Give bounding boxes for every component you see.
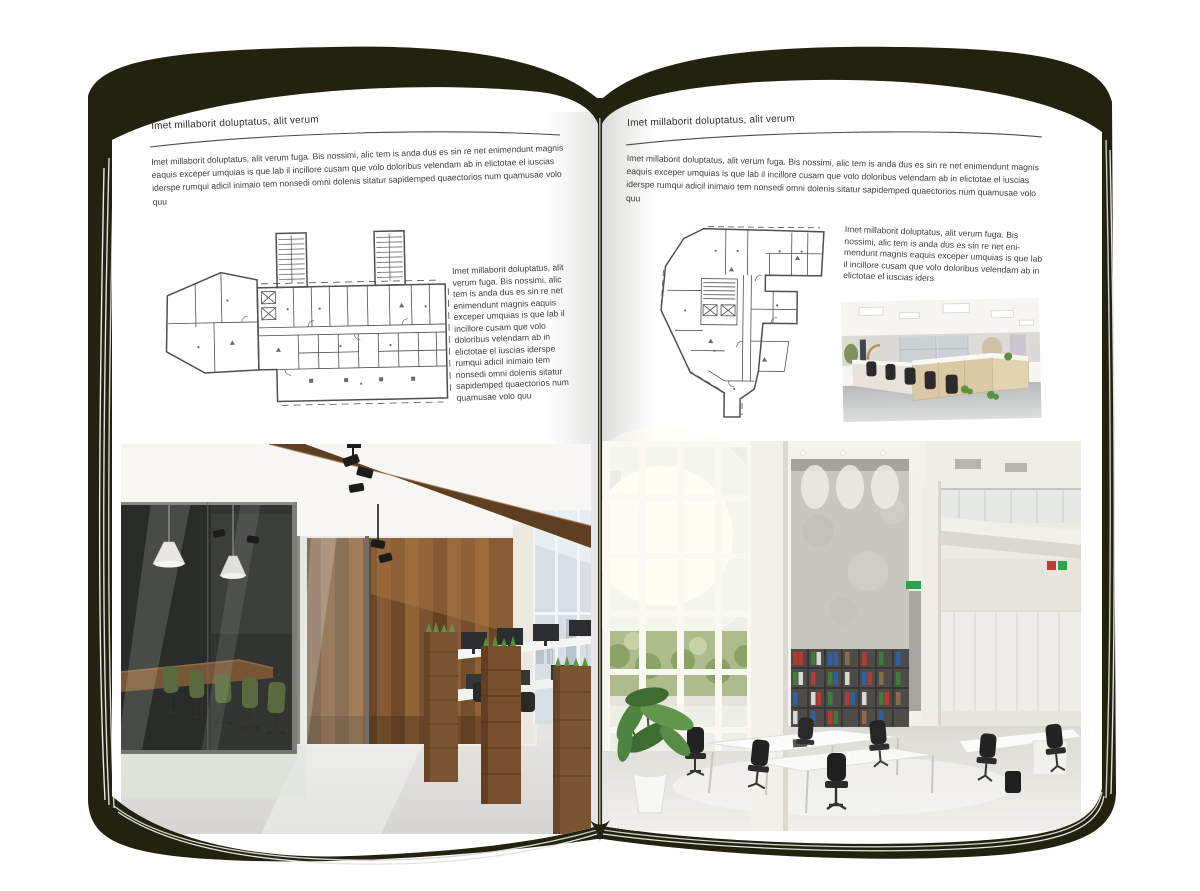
photo-open-office-small [841, 298, 1041, 422]
photo-loft-office [553, 426, 1081, 831]
right-page-side-text: Imet millaborit doluptatus, alit verum f… [843, 224, 1047, 289]
magazine-spread-mockup: Imet millaborit doluptatus, alit verum I… [0, 0, 1200, 891]
column [751, 441, 787, 831]
glass-meeting-room [121, 502, 297, 754]
left-page-side-text: Imet millaborit doluptatus, alit verum f… [452, 262, 575, 404]
concrete-wall [791, 459, 909, 649]
book-artwork [0, 0, 1200, 891]
mezzanine-zone [921, 441, 1081, 726]
right-page-intro: Imet millaborit doluptatus, alit verum f… [626, 152, 1049, 214]
binder-bookshelf [791, 649, 909, 727]
white-cabinets [933, 611, 1081, 711]
photo-office-meeting-room [121, 444, 591, 834]
